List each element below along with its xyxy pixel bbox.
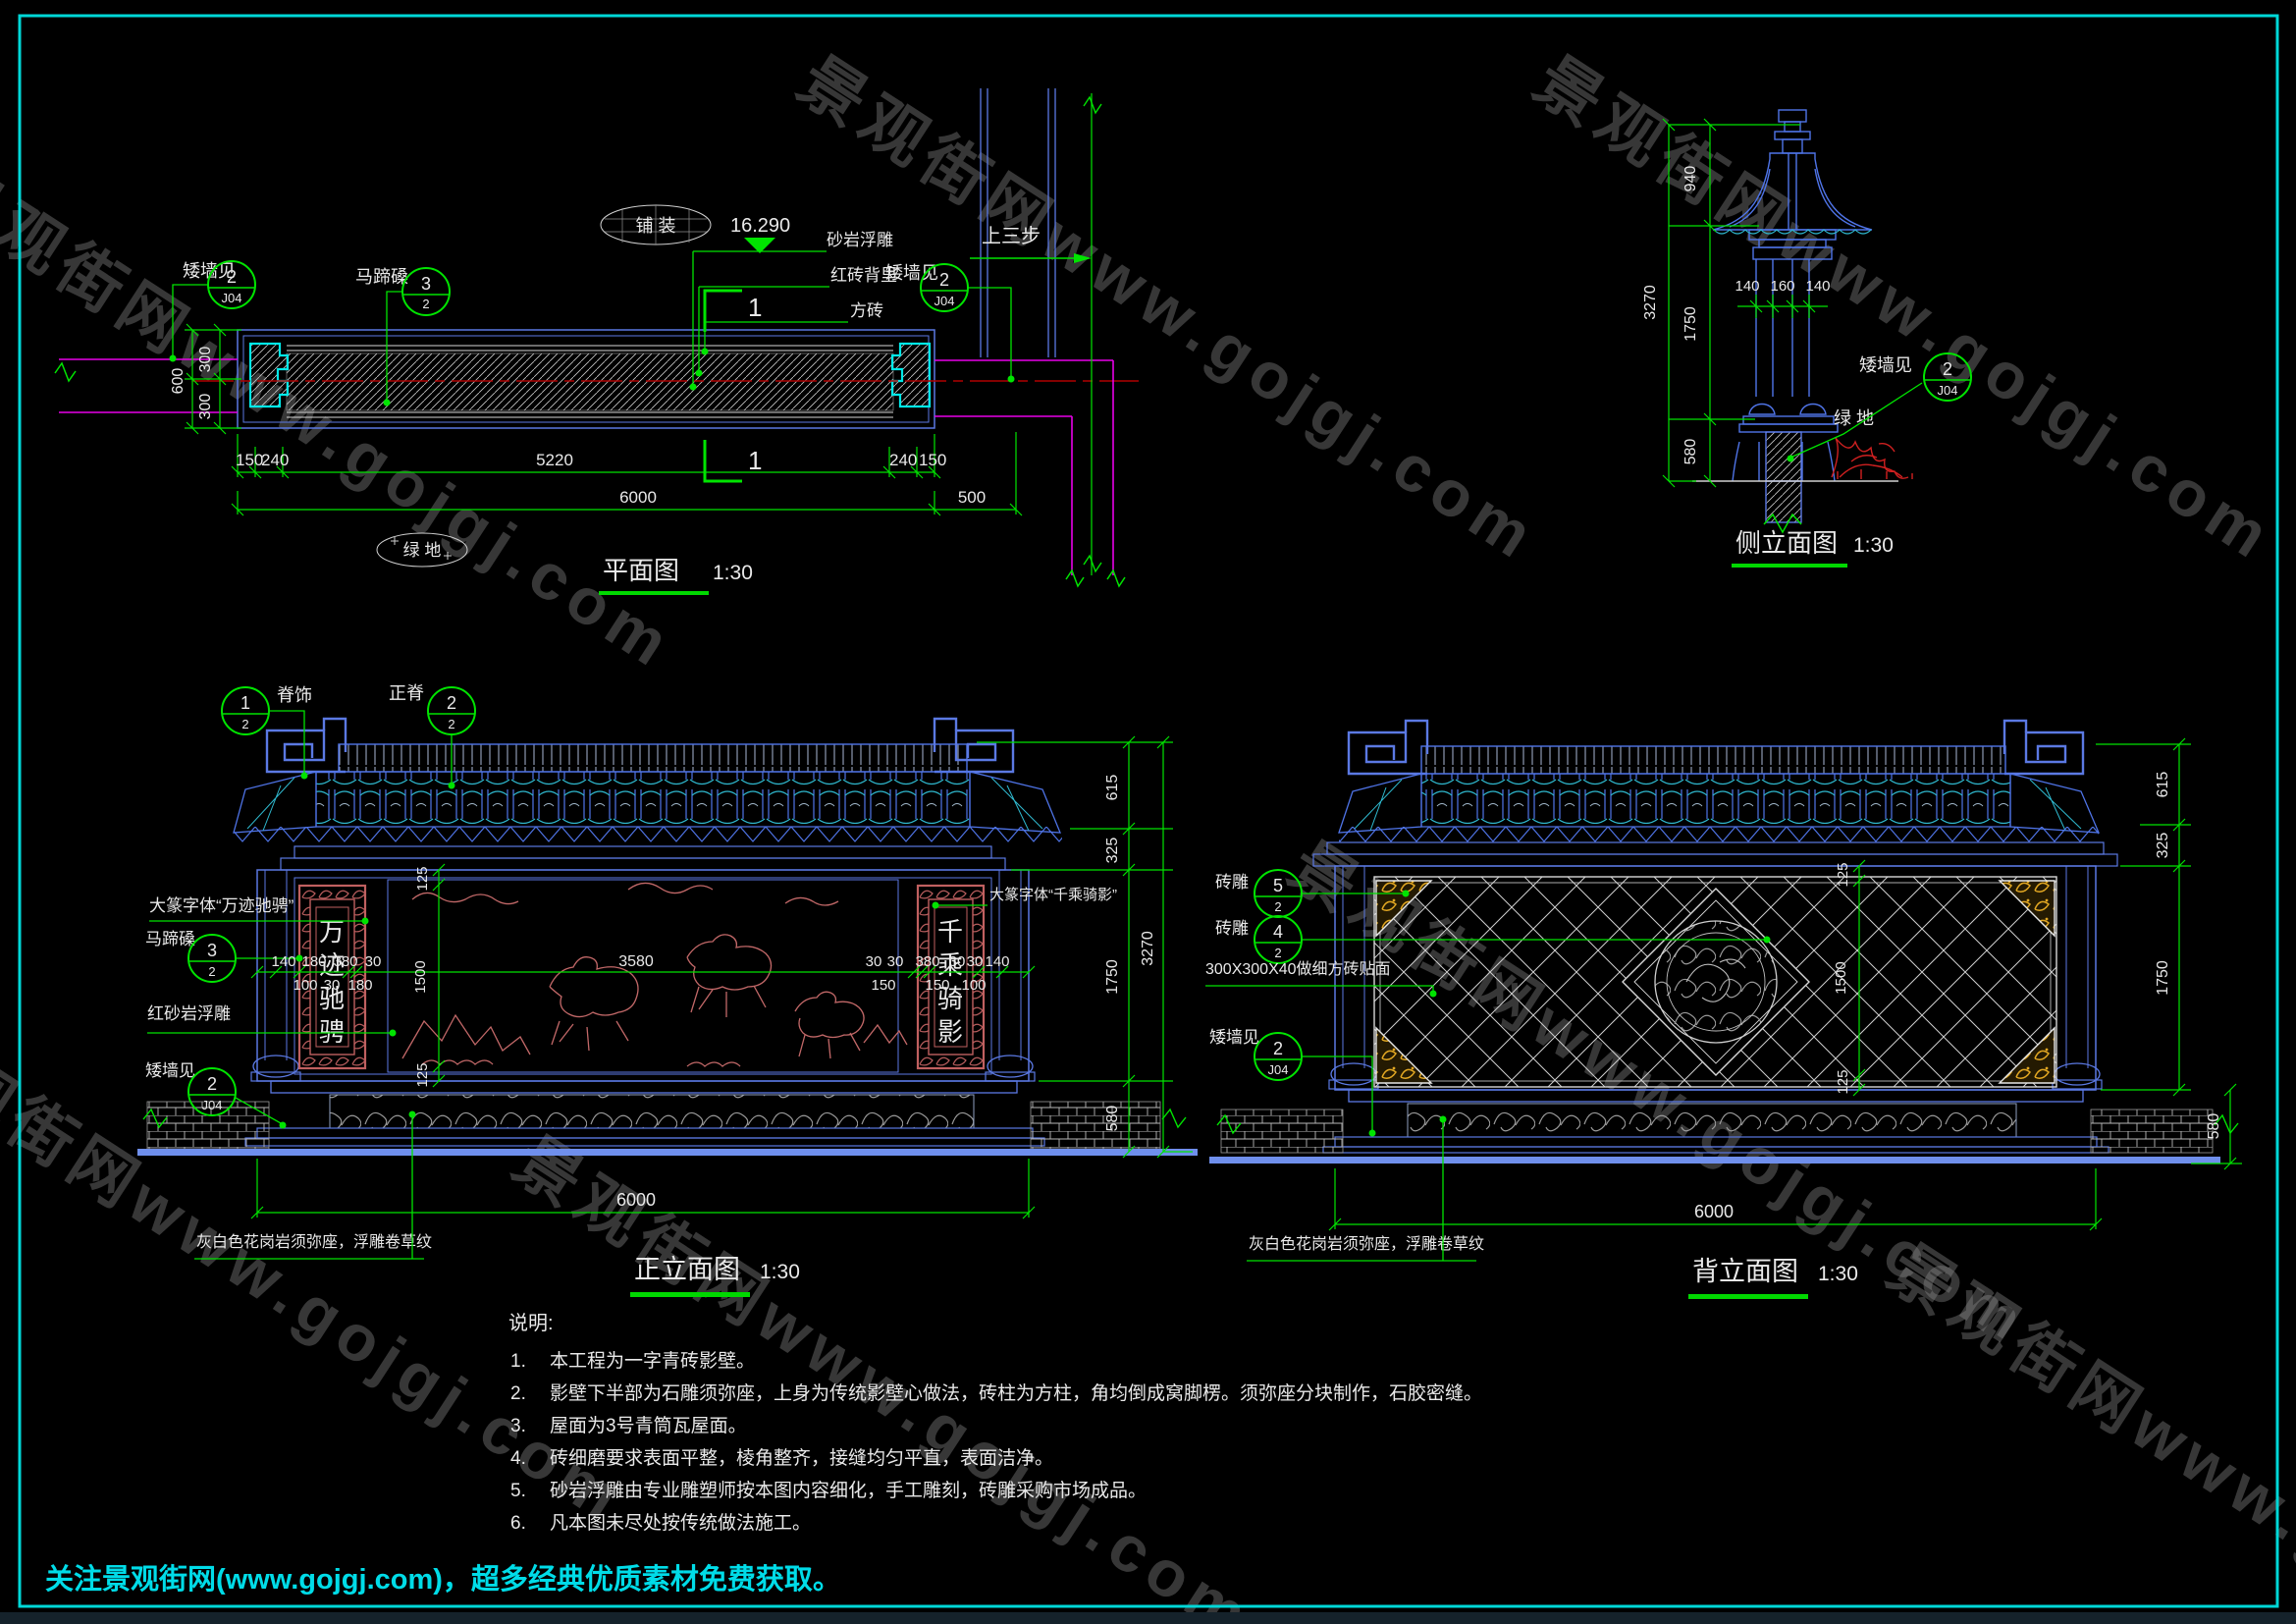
svg-text:30: 30 <box>324 977 341 994</box>
svg-text:影壁下半部为石雕须弥座，上身为传统影壁心做法，砖柱为方柱，角: 影壁下半部为石雕须弥座，上身为传统影壁心做法，砖柱为方柱，角均倒成窝脚楞。须弥座… <box>550 1382 1482 1404</box>
detail-bubble: 4 2 <box>1255 916 1302 963</box>
detail-bubble: 2 2 <box>428 687 475 734</box>
svg-text:6000: 6000 <box>619 488 657 507</box>
plan-right-pier <box>892 344 930 406</box>
svg-text:1500: 1500 <box>1833 961 1849 994</box>
svg-text:140: 140 <box>271 953 295 970</box>
svg-text:615: 615 <box>1104 775 1121 801</box>
svg-text:2: 2 <box>422 297 429 311</box>
svg-text:J04: J04 <box>934 294 955 308</box>
steps-label: 上三步 <box>982 225 1041 247</box>
view-scale: 1:30 <box>1853 534 1894 557</box>
shrub-symbol <box>1832 438 1912 479</box>
svg-text:5220: 5220 <box>536 451 573 469</box>
ref-label: 砖雕 <box>1215 873 1249 892</box>
section-number: 1 <box>748 446 762 475</box>
svg-text:100: 100 <box>961 977 986 994</box>
plan-view: 上三步 16.290 铺 装 绿 地 1 1 矮墙见 2 J04 马蹄磉 3 2 <box>55 88 1139 595</box>
svg-text:140: 140 <box>1805 278 1830 295</box>
svg-text:屋面为3号青筒瓦屋面。: 屋面为3号青筒瓦屋面。 <box>550 1415 747 1436</box>
ground-line <box>1209 1157 2220 1164</box>
svg-text:140: 140 <box>1735 278 1759 295</box>
view-scale: 1:30 <box>760 1261 800 1283</box>
svg-text:5.: 5. <box>510 1481 526 1501</box>
svg-text:2.: 2. <box>510 1383 526 1404</box>
svg-text:300: 300 <box>197 347 214 373</box>
svg-text:500: 500 <box>958 488 986 507</box>
detail-bubble: 5 2 <box>1255 870 1302 917</box>
svg-text:2: 2 <box>207 1074 217 1094</box>
horse-relief <box>388 880 907 1072</box>
svg-text:砖细磨要求表面平整，棱角整齐，接缝均匀平直，表面洁净。: 砖细磨要求表面平整，棱角整齐，接缝均匀平直，表面洁净。 <box>550 1447 1053 1469</box>
svg-text:2: 2 <box>241 717 248 731</box>
svg-text:125: 125 <box>1835 1069 1851 1094</box>
ref-label: 矮墙见 <box>1859 355 1912 375</box>
detail-bubble: 3 2 <box>402 268 450 315</box>
ref-label: 脊饰 <box>277 685 312 705</box>
svg-text:J04: J04 <box>1938 383 1958 398</box>
svg-text:1500: 1500 <box>412 960 429 993</box>
drawing-svg: 上三步 16.290 铺 装 绿 地 1 1 矮墙见 2 J04 马蹄磉 3 2 <box>0 0 2296 1624</box>
svg-text:150: 150 <box>236 451 263 469</box>
svg-text:影: 影 <box>937 1017 963 1047</box>
section-number: 1 <box>748 293 762 322</box>
leader-label: 砂岩浮雕 <box>827 231 893 249</box>
notes-title: 说明: <box>508 1312 554 1334</box>
ref-label: 矮墙见 <box>145 1061 195 1080</box>
svg-text:J04: J04 <box>202 1098 223 1112</box>
svg-text:150: 150 <box>925 977 949 994</box>
svg-text:3580: 3580 <box>618 953 654 970</box>
svg-text:J04: J04 <box>222 291 242 305</box>
svg-text:4.: 4. <box>510 1448 526 1469</box>
svg-text:凡本图未尽处按传统做法施工。: 凡本图未尽处按传统做法施工。 <box>550 1512 811 1534</box>
svg-text:125: 125 <box>1835 862 1851 887</box>
green-ellipse: 绿 地 <box>377 533 467 567</box>
ground-line <box>137 1149 1198 1156</box>
ref-label: 马蹄磉 <box>355 267 408 287</box>
ref-label: 马蹄磉 <box>145 930 195 948</box>
leader-label: 红砖背里 <box>830 266 897 285</box>
svg-text:3270: 3270 <box>1140 931 1156 966</box>
base-label: 灰白色花岗岩须弥座，浮雕卷草纹 <box>1249 1235 1484 1253</box>
notes-block: 说明: 1.本工程为一字青砖影壁。 2.影壁下半部为石雕须弥座，上身为传统影壁心… <box>508 1312 1482 1534</box>
svg-text:1: 1 <box>240 693 250 713</box>
svg-text:骋: 骋 <box>319 1017 345 1047</box>
leader-label: 大篆字体“万迹驰骋” <box>149 895 294 915</box>
svg-text:30: 30 <box>365 953 382 970</box>
svg-text:580: 580 <box>2206 1113 2222 1140</box>
svg-text:绿 地: 绿 地 <box>403 541 442 560</box>
svg-text:615: 615 <box>2155 772 2171 798</box>
base-label: 灰白色花岗岩须弥座，浮雕卷草纹 <box>196 1233 432 1251</box>
svg-text:325: 325 <box>1104 838 1121 864</box>
view-title: 平面图 <box>603 556 679 585</box>
svg-text:铺 装: 铺 装 <box>635 216 675 236</box>
detail-bubble: 2 J04 <box>1255 1033 1302 1080</box>
svg-text:325: 325 <box>2155 833 2171 859</box>
ref-label: 矮墙见 <box>1209 1028 1259 1047</box>
svg-text:3: 3 <box>421 274 431 294</box>
level-text: 16.290 <box>730 215 790 237</box>
view-scale: 1:30 <box>1818 1263 1858 1285</box>
promo-bar-text: 关注景观街网(www.gojgj.com)，超多经典优质素材免费获取。 <box>45 1562 841 1596</box>
svg-text:30: 30 <box>949 953 966 970</box>
leader-label: 红砂岩浮雕 <box>147 1004 231 1023</box>
view-title: 侧立面图 <box>1735 528 1838 558</box>
svg-text:1.: 1. <box>510 1351 526 1372</box>
svg-text:3270: 3270 <box>1642 285 1659 320</box>
svg-text:1750: 1750 <box>2155 960 2171 996</box>
svg-text:3.: 3. <box>510 1416 526 1436</box>
svg-text:2: 2 <box>448 717 454 731</box>
leader-label: 大篆字体“千乘骑影” <box>989 886 1117 903</box>
side-elevation-view: 绿 地 矮墙见 2 J04 940 1750 580 3270 140 160 … <box>1642 110 1971 568</box>
svg-text:30: 30 <box>887 953 904 970</box>
svg-text:4: 4 <box>1273 922 1283 942</box>
svg-text:125: 125 <box>414 1062 431 1087</box>
detail-bubble: 2 J04 <box>921 264 968 311</box>
view-title: 背立面图 <box>1692 1257 1798 1286</box>
svg-text:180: 180 <box>347 977 372 994</box>
plan-left-pier <box>250 344 288 406</box>
svg-text:3: 3 <box>207 941 217 960</box>
paving-ellipse: 铺 装 <box>601 205 711 244</box>
detail-bubble: 2 J04 <box>208 261 255 308</box>
view-title: 正立面图 <box>634 1255 740 1284</box>
detail-bubble: 3 2 <box>188 935 236 982</box>
svg-text:240: 240 <box>889 451 917 469</box>
svg-text:580: 580 <box>1682 439 1699 465</box>
svg-text:100: 100 <box>293 977 317 994</box>
svg-text:1750: 1750 <box>1682 306 1699 342</box>
ref-label: 砖雕 <box>1215 919 1249 938</box>
svg-text:300: 300 <box>197 394 214 420</box>
svg-text:J04: J04 <box>1268 1062 1289 1077</box>
svg-text:150: 150 <box>871 977 895 994</box>
svg-text:2: 2 <box>1943 359 1952 379</box>
svg-text:2: 2 <box>1274 946 1281 960</box>
detail-bubble: 2 J04 <box>188 1068 236 1115</box>
svg-text:30: 30 <box>866 953 882 970</box>
svg-text:240: 240 <box>261 451 289 469</box>
svg-text:2: 2 <box>939 270 949 290</box>
leader-label: 方砖 <box>850 301 883 320</box>
svg-text:30: 30 <box>967 953 984 970</box>
ref-label: 正脊 <box>389 683 424 703</box>
svg-text:600: 600 <box>170 368 187 395</box>
front-elevation-view: 万 迹 驰 骋 千 乘 骑 影 脊饰 1 <box>137 683 1198 1297</box>
svg-text:本工程为一字青砖影壁。: 本工程为一字青砖影壁。 <box>550 1350 755 1372</box>
svg-text:6000: 6000 <box>616 1190 656 1210</box>
svg-text:580: 580 <box>1104 1106 1121 1132</box>
back-elevation-view: 砖雕 5 2 砖雕 4 2 300X300X40做细方砖贴面 矮墙见 2 J04… <box>1205 721 2242 1299</box>
svg-text:380: 380 <box>915 953 939 970</box>
leader-label: 300X300X40做细方砖贴面 <box>1205 960 1391 978</box>
detail-bubble: 2 J04 <box>1924 353 1971 401</box>
svg-text:1750: 1750 <box>1104 959 1121 995</box>
svg-text:2: 2 <box>447 693 456 713</box>
svg-text:2: 2 <box>208 964 215 979</box>
svg-text:6000: 6000 <box>1694 1202 1734 1221</box>
svg-text:160: 160 <box>1770 278 1794 295</box>
svg-text:125: 125 <box>414 866 431 891</box>
cad-drawing-canvas: 景观街网www.gojgj.com 景观街网www.gojgj.com 景观街网… <box>0 0 2296 1624</box>
svg-text:2: 2 <box>1274 899 1281 914</box>
svg-text:140: 140 <box>985 953 1009 970</box>
detail-bubble: 1 2 <box>222 687 269 734</box>
svg-text:150: 150 <box>919 451 946 469</box>
svg-text:2: 2 <box>1273 1039 1283 1058</box>
svg-text:砂岩浮雕由专业雕塑师按本图内容细化，手工雕刻，砖雕采购市场成: 砂岩浮雕由专业雕塑师按本图内容细化，手工雕刻，砖雕采购市场成品。 <box>550 1480 1147 1501</box>
view-scale: 1:30 <box>713 562 753 584</box>
svg-text:6.: 6. <box>510 1513 526 1534</box>
svg-text:5: 5 <box>1273 876 1283 895</box>
svg-text:2: 2 <box>227 267 237 287</box>
svg-text:千: 千 <box>937 917 963 947</box>
svg-text:940: 940 <box>1682 166 1699 192</box>
svg-text:380: 380 <box>333 953 357 970</box>
svg-text:180: 180 <box>301 953 326 970</box>
